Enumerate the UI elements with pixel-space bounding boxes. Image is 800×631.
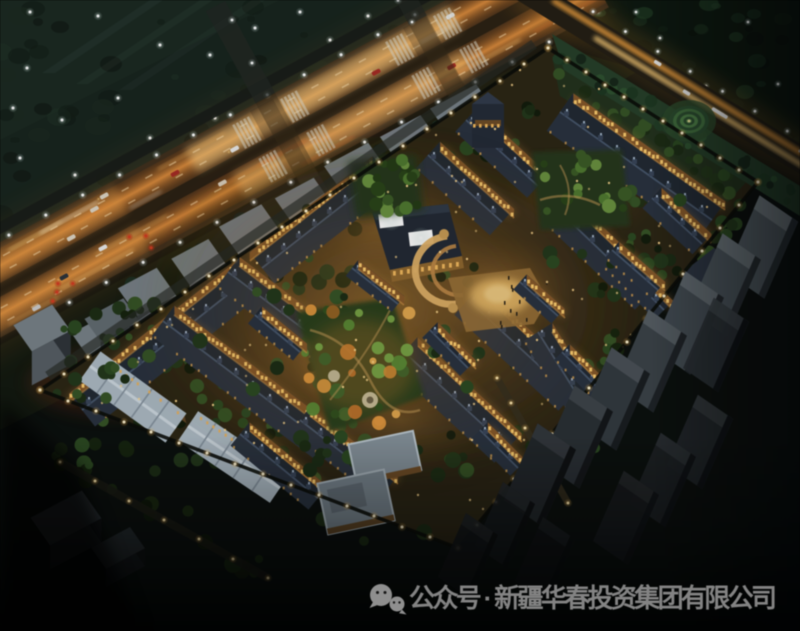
svg-text:公众号 · 新疆华春投资集团有限公司: 公众号 · 新疆华春投资集团有限公司 [409, 583, 777, 613]
